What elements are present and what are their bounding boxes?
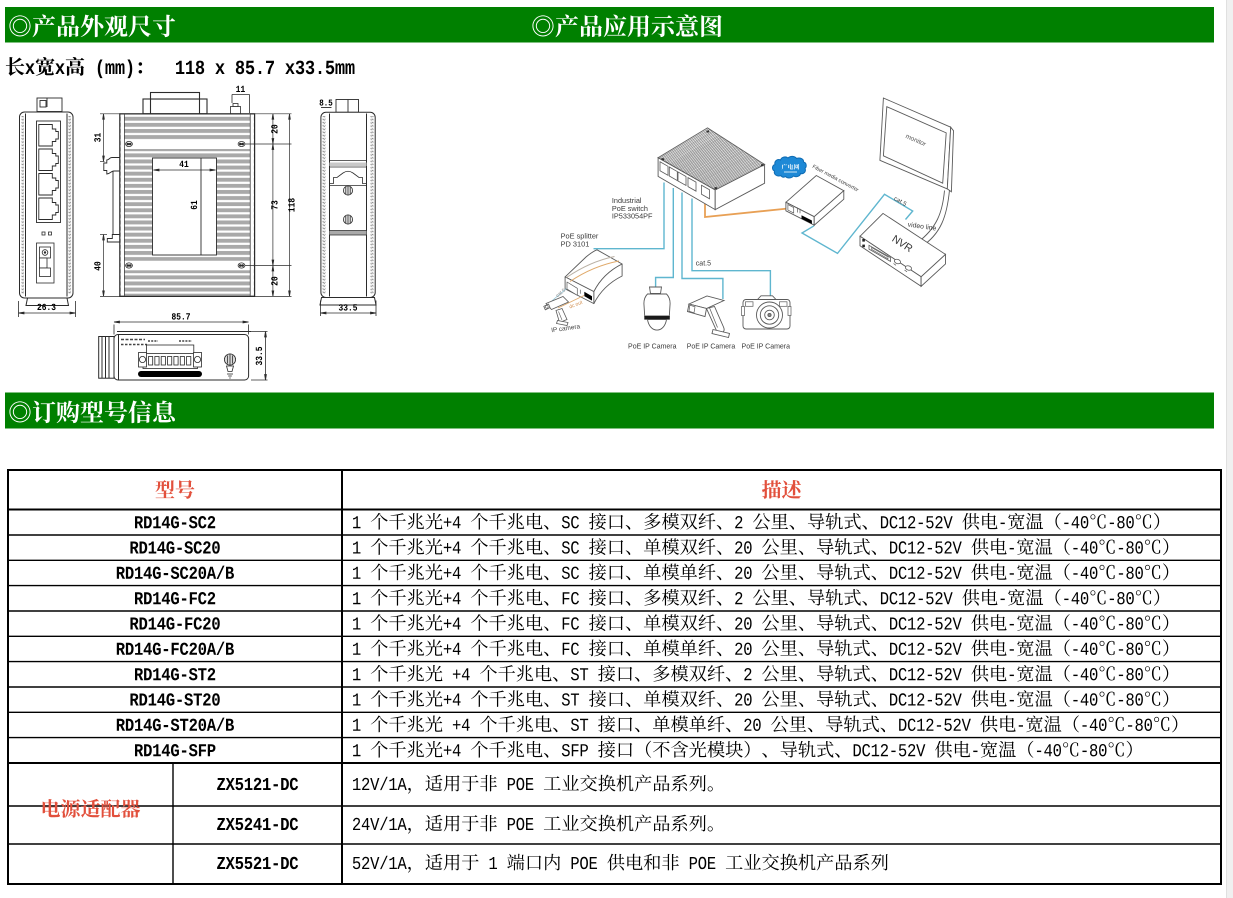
svg-text:IP533054PF: IP533054PF [612,211,653,220]
svg-text:PoE IP Camera: PoE IP Camera [687,343,736,350]
svg-text:PoE IP Camera: PoE IP Camera [628,343,677,350]
svg-text:cat.5: cat.5 [696,260,711,267]
svg-text:IP camera: IP camera [551,323,581,334]
svg-text:PD 3101: PD 3101 [561,240,590,249]
svg-text:video line: video line [907,222,937,233]
svg-text:dc out: dc out [569,299,584,310]
svg-text:PoE IP Camera: PoE IP Camera [742,343,791,350]
